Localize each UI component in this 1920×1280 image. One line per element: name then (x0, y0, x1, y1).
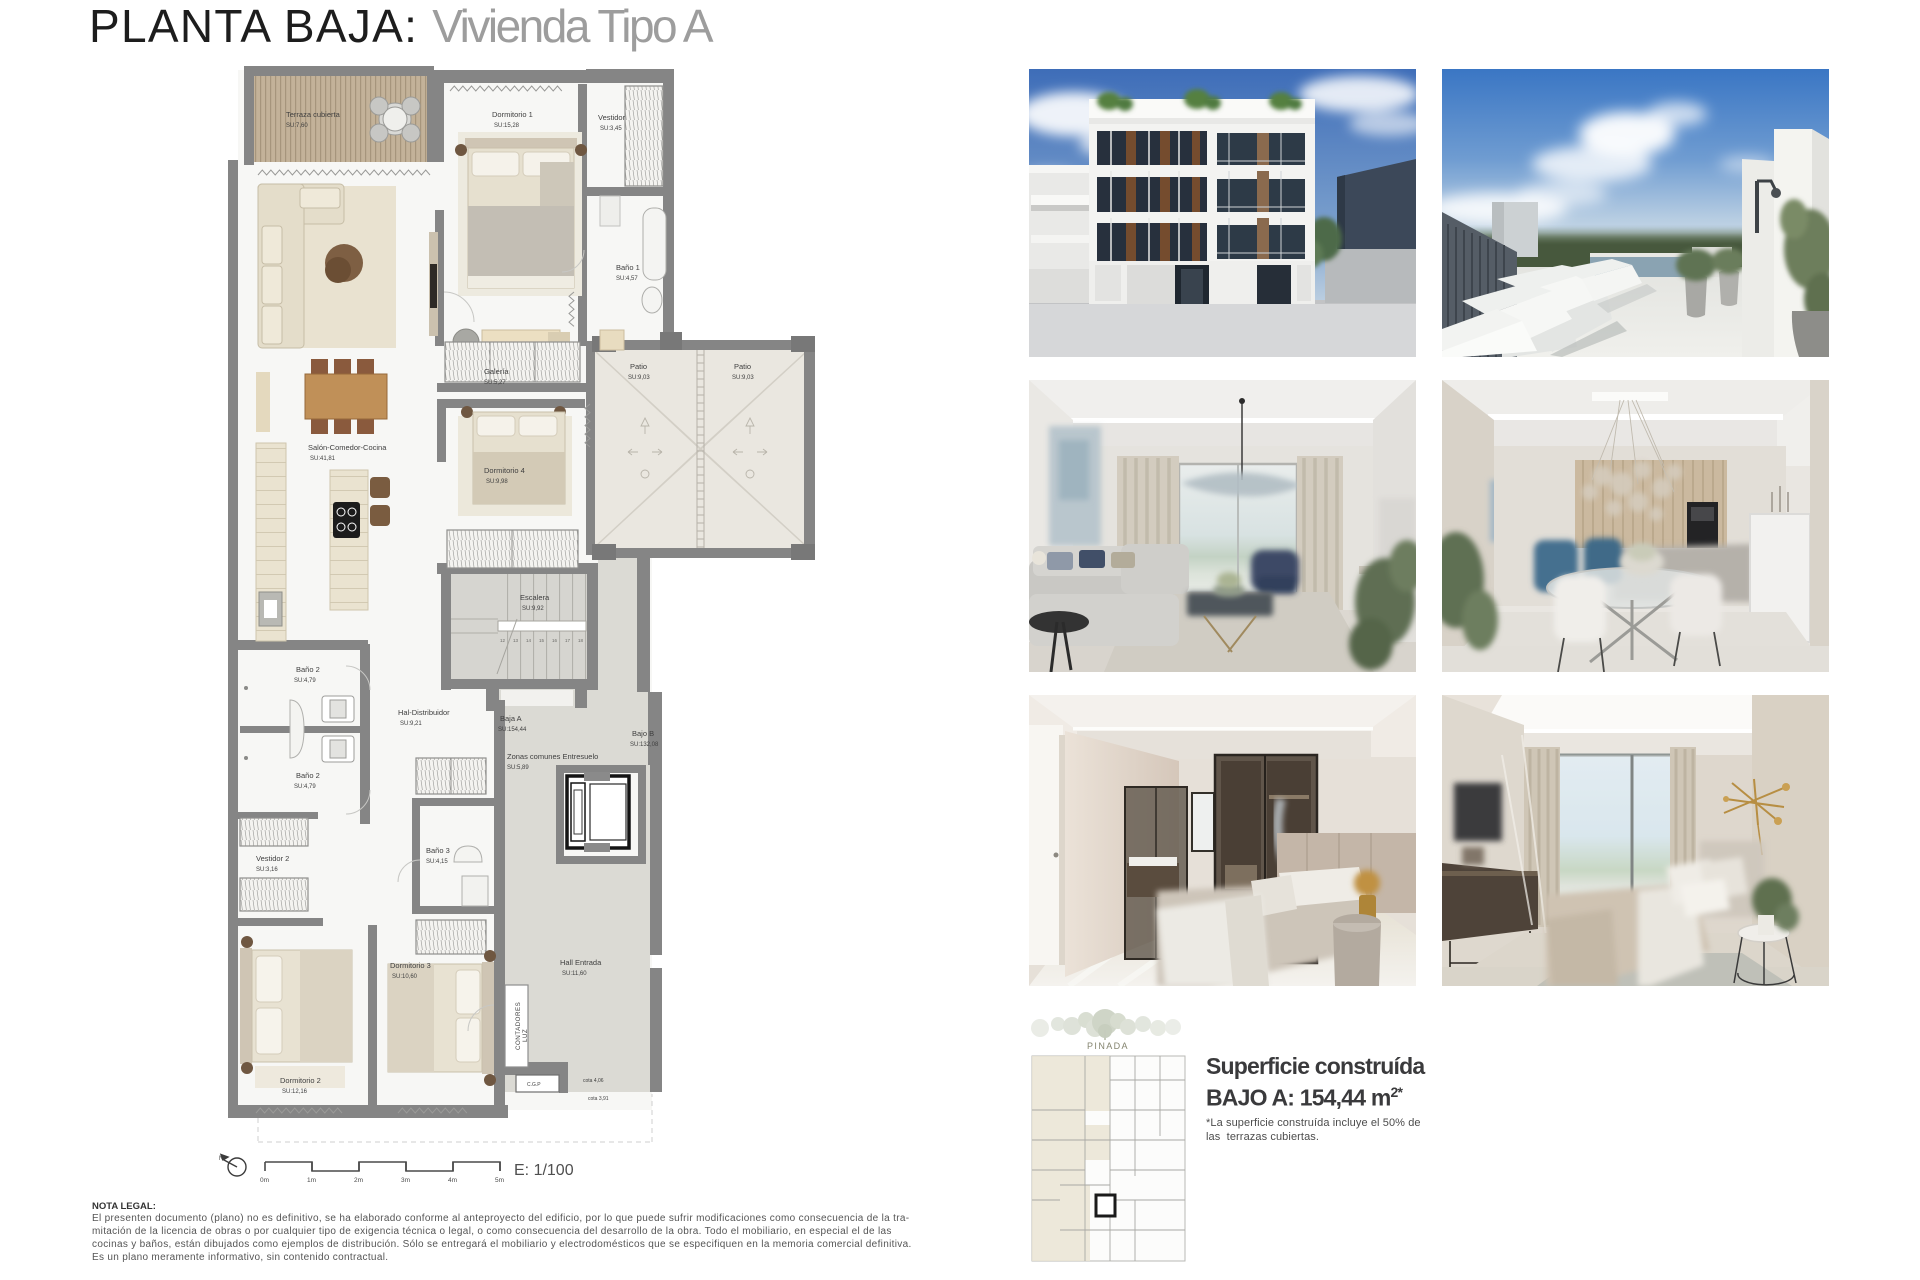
svg-text:Hal-Distribuidor: Hal-Distribuidor (398, 708, 450, 717)
svg-text:SU:3,16: SU:3,16 (256, 867, 278, 873)
svg-text:SU:11,60: SU:11,60 (562, 971, 587, 977)
svg-text:SU:4,79: SU:4,79 (294, 678, 316, 684)
svg-text:SU:132,08: SU:132,08 (630, 742, 659, 748)
svg-text:SU:7,60: SU:7,60 (286, 123, 308, 129)
svg-text:SU:41,81: SU:41,81 (310, 456, 336, 462)
svg-text:3m: 3m (401, 1177, 410, 1184)
svg-text:Baño 3: Baño 3 (426, 846, 450, 855)
svg-text:Baja A: Baja A (500, 714, 522, 723)
svg-text:18: 18 (578, 638, 584, 643)
svg-text:SU:9,98: SU:9,98 (486, 479, 508, 485)
svg-text:SU:10,60: SU:10,60 (392, 974, 418, 980)
svg-text:13: 13 (513, 638, 519, 643)
svg-text:SU:3,45: SU:3,45 (600, 126, 622, 132)
svg-text:cota 3,91: cota 3,91 (588, 1096, 609, 1102)
svg-text:SU:154,44: SU:154,44 (498, 727, 527, 733)
svg-text:Dormitorio 2: Dormitorio 2 (280, 1076, 321, 1085)
svg-text:cota 4,06: cota 4,06 (583, 1078, 604, 1084)
svg-text:LUZ: LUZ (522, 1029, 529, 1042)
svg-text:Dormitorio 1: Dormitorio 1 (492, 110, 533, 119)
svg-text:SU:4,15: SU:4,15 (426, 859, 448, 865)
svg-text:Patio: Patio (734, 362, 751, 371)
svg-text:CONTADORES: CONTADORES (515, 1002, 522, 1050)
svg-text:14: 14 (526, 638, 532, 643)
svg-text:Baño 1: Baño 1 (616, 263, 640, 272)
svg-text:2m: 2m (354, 1177, 363, 1184)
svg-text:Dormitorio 4: Dormitorio 4 (484, 466, 525, 475)
svg-text:Hall Entrada: Hall Entrada (560, 958, 602, 967)
svg-text:SU:5,89: SU:5,89 (507, 765, 529, 771)
svg-text:16: 16 (552, 638, 558, 643)
svg-text:Zonas comunes Entresuelo: Zonas comunes Entresuelo (507, 752, 598, 761)
svg-text:Galería: Galería (484, 367, 509, 376)
svg-text:Dormitorio 3: Dormitorio 3 (390, 961, 431, 970)
svg-text:N: N (219, 1156, 223, 1162)
svg-text:5m: 5m (495, 1177, 504, 1184)
svg-text:Vestidor: Vestidor (598, 113, 626, 122)
svg-text:SU:9,03: SU:9,03 (732, 375, 754, 381)
svg-text:SU:9,92: SU:9,92 (522, 606, 544, 612)
svg-text:4m: 4m (448, 1177, 457, 1184)
svg-text:Bajo B: Bajo B (632, 729, 654, 738)
svg-text:1m: 1m (307, 1177, 316, 1184)
svg-text:SU:5,27: SU:5,27 (484, 380, 506, 386)
svg-text:Vestidor 2: Vestidor 2 (256, 854, 289, 863)
svg-text:17: 17 (565, 638, 571, 643)
svg-text:15: 15 (539, 638, 545, 643)
svg-text:SU:9,21: SU:9,21 (400, 721, 422, 727)
svg-text:Terraza cubierta: Terraza cubierta (286, 110, 341, 119)
svg-text:SU:4,79: SU:4,79 (294, 784, 316, 790)
svg-text:Baño 2: Baño 2 (296, 771, 320, 780)
svg-text:Baño 2: Baño 2 (296, 665, 320, 674)
svg-text:E: 1/100: E: 1/100 (514, 1162, 574, 1179)
svg-text:Escalera: Escalera (520, 593, 550, 602)
svg-text:12: 12 (500, 638, 506, 643)
svg-text:Patio: Patio (630, 362, 647, 371)
svg-text:SU:15,28: SU:15,28 (494, 123, 520, 129)
svg-text:C.G.P: C.G.P (527, 1082, 541, 1088)
svg-text:SU:9,03: SU:9,03 (628, 375, 650, 381)
svg-text:Salón-Comedor-Cocina: Salón-Comedor-Cocina (308, 443, 387, 452)
svg-text:SU:12,16: SU:12,16 (282, 1089, 308, 1095)
svg-text:SU:4,57: SU:4,57 (616, 276, 638, 282)
svg-text:0m: 0m (260, 1177, 269, 1184)
